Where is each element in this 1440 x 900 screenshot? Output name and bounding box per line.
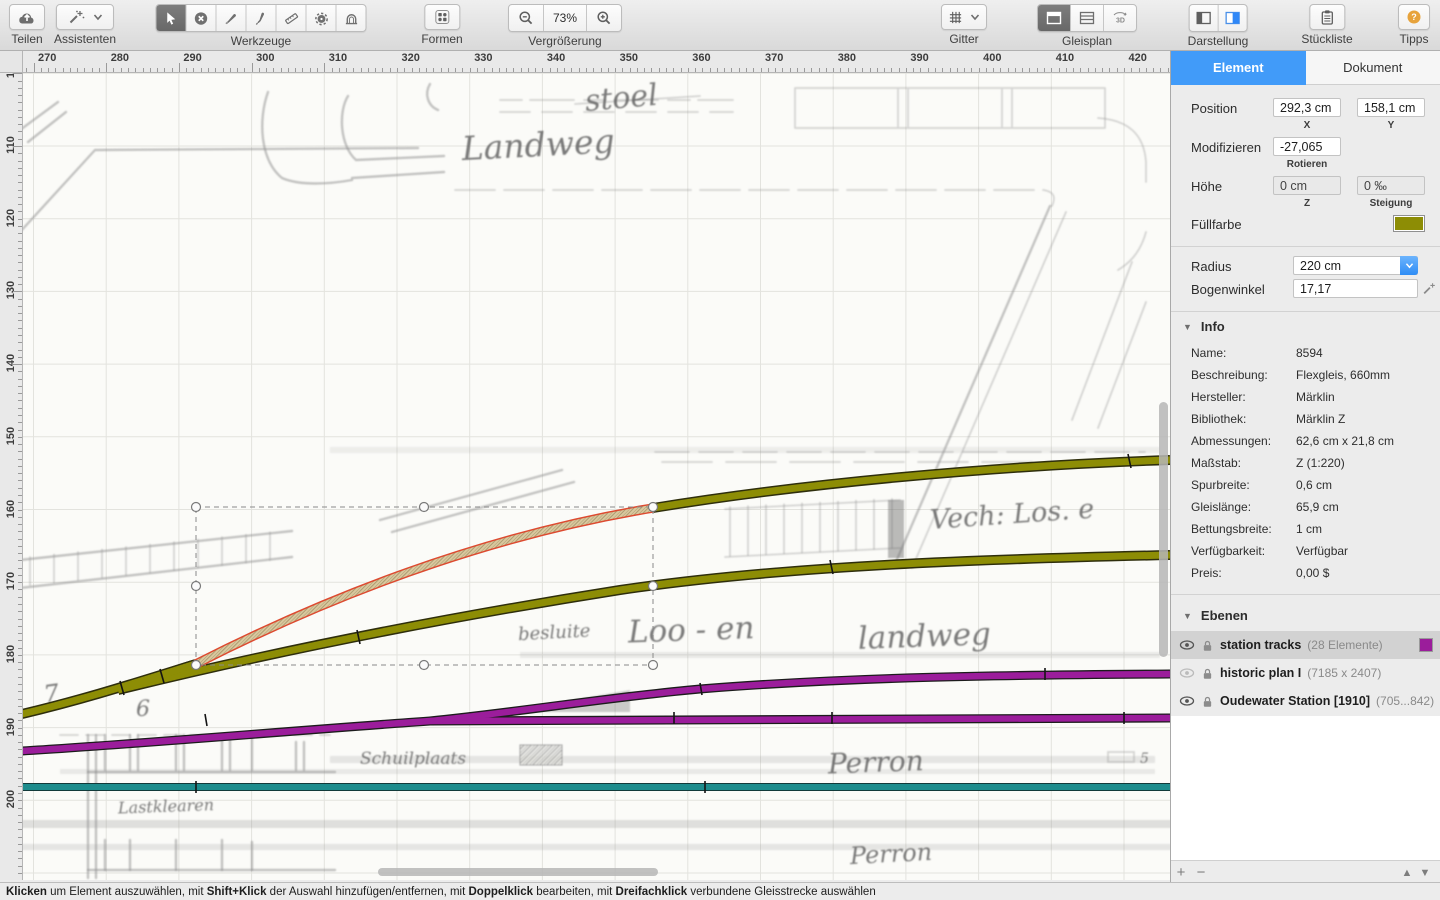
slope-field[interactable]: 0 ‰ (1357, 176, 1425, 195)
zoom-segmented: 73% (508, 4, 622, 32)
info-value: 62,6 cm x 21,8 cm (1296, 434, 1394, 448)
ruler-label: 410 (1056, 52, 1074, 64)
x-sublabel: X (1273, 120, 1341, 131)
zoom-out-button[interactable] (509, 5, 543, 31)
map-annotation: Perron (826, 744, 924, 780)
panel-right-icon (1224, 11, 1240, 25)
radius-label: Radius (1191, 259, 1231, 274)
shapes-group: Formen (421, 4, 462, 46)
tips-group: ? Tipps (1398, 4, 1430, 46)
ruler-label: 350 (620, 52, 638, 64)
eyedropper-icon (254, 11, 269, 26)
ruler-label: 400 (983, 52, 1001, 64)
assistants-group: Assistenten (54, 4, 116, 46)
ruler-label: 380 (838, 52, 856, 64)
tools-segmented (156, 4, 367, 32)
ruler-corner (0, 50, 23, 73)
status-text: Shift+Klick (207, 886, 267, 898)
ruler-label: 180 (5, 642, 17, 666)
zoom-label: Vergrößerung (528, 34, 601, 48)
info-label: Verfügbarkeit: (1191, 544, 1265, 558)
layers-section-header[interactable]: ▼ Ebenen (1183, 608, 1248, 623)
zoom-out-icon (518, 10, 534, 26)
shapes-label: Formen (421, 32, 462, 46)
ruler-label: 360 (692, 52, 710, 64)
info-value: 8594 (1296, 346, 1323, 360)
display-segmented (1188, 4, 1247, 32)
status-text: der Auswahl hinzufügen/entfernen, mit (266, 886, 468, 898)
z-sublabel: Z (1273, 198, 1341, 209)
info-label: Gleislänge: (1191, 500, 1251, 514)
z-field[interactable]: 0 cm (1273, 176, 1341, 195)
move-layer-up-button[interactable]: ▲ (1398, 867, 1416, 879)
info-value: Märklin Z (1296, 412, 1345, 426)
map-annotation: Loo - en (626, 610, 755, 650)
zoom-group: 73% Vergrößerung (508, 4, 622, 48)
info-value: Z (1:220) (1296, 456, 1345, 470)
info-section-header[interactable]: ▼ Info (1183, 319, 1225, 334)
help-icon: ? (1406, 9, 1422, 25)
select-tool-button[interactable] (157, 5, 186, 31)
inspector-panel: Element Dokument Position 292,3 cm 158,1… (1170, 50, 1440, 882)
arc-angle-label: Bogenwinkel (1191, 282, 1265, 297)
list-view-button[interactable] (1070, 5, 1103, 31)
shapes-icon (434, 9, 450, 25)
assistants-label: Assistenten (54, 32, 116, 46)
vertical-scrollbar-thumb[interactable] (1159, 402, 1168, 657)
tools-group: Werkzeuge (156, 4, 367, 48)
status-text: Dreifachklick (616, 886, 688, 898)
trackplan-view-button[interactable] (1038, 5, 1070, 31)
info-label: Spurbreite: (1191, 478, 1250, 492)
ruler-label: 140 (5, 351, 17, 375)
zoom-in-button[interactable] (586, 5, 621, 31)
layer-color-swatch[interactable] (1419, 638, 1433, 652)
vertical-ruler: 10110120130140150160170180190200 (0, 72, 23, 880)
position-x-field[interactable]: 292,3 cm (1273, 98, 1341, 117)
ruler-label: 310 (329, 52, 347, 64)
grid-group: Gitter (941, 4, 987, 46)
info-value: 65,9 cm (1296, 500, 1339, 514)
map-annotation: besluite (518, 620, 591, 645)
horizontal-scrollbar-thumb[interactable] (378, 868, 658, 876)
layer-row-oudewater-station[interactable]: Oudewater Station [1910] (705...842) (1171, 687, 1440, 715)
info-label: Bettungsbreite: (1191, 522, 1272, 536)
map-annotation: 6 (136, 697, 150, 722)
move-layer-down-button[interactable]: ▼ (1416, 867, 1434, 879)
tips-label: Tipps (1400, 32, 1429, 46)
shapes-button[interactable] (424, 4, 460, 30)
partslist-group: Stückliste (1301, 4, 1352, 46)
trackplan-label: Gleisplan (1062, 34, 1112, 48)
ruler-icon (283, 11, 299, 26)
layers-toolbar: + − ▲ ▼ (1171, 860, 1440, 884)
cursor-icon (164, 11, 179, 26)
ruler-label: 390 (910, 52, 928, 64)
svg-text:3D: 3D (1116, 18, 1125, 25)
map-annotation: 5 (1140, 751, 1149, 767)
tunnel-icon (343, 11, 359, 26)
tab-dokument[interactable]: Dokument (1306, 50, 1440, 85)
rotate-field[interactable]: -27,065 (1273, 137, 1341, 156)
share-group: Teilen (9, 4, 45, 46)
map-annotation: Vech: Los. e (929, 494, 1095, 536)
eyedropper-tool-button[interactable] (246, 5, 276, 31)
disclosure-triangle-icon: ▼ (1183, 611, 1192, 621)
fillcolor-well[interactable] (1393, 215, 1425, 232)
lock-icon[interactable] (1201, 694, 1214, 709)
ruler-label: 190 (5, 715, 17, 739)
layer-name: Oudewater Station [1910] (1220, 694, 1370, 708)
selection-handles[interactable] (192, 503, 658, 670)
info-label: Hersteller: (1191, 390, 1246, 404)
eye-icon[interactable] (1179, 639, 1195, 651)
layer-name: station tracks (1220, 638, 1301, 652)
eye-icon[interactable] (1179, 695, 1195, 707)
trackplan-canvas[interactable]: stoel Landweg Vech: Los. e besluite Loo … (22, 72, 1170, 880)
info-label: Beschreibung: (1191, 368, 1268, 382)
layers-list-background (1171, 716, 1440, 860)
cut-tool-button[interactable] (306, 5, 336, 31)
ruler-label: 270 (38, 52, 56, 64)
ruler-label: 200 (5, 787, 17, 811)
cloud-upload-icon (17, 10, 37, 25)
ruler-label: 290 (183, 52, 201, 64)
wand-icon[interactable] (1422, 281, 1437, 296)
ruler-label: 160 (5, 497, 17, 521)
map-annotation: landweg (857, 616, 991, 657)
partslist-label: Stückliste (1301, 32, 1352, 46)
layer-detail: (28 Elemente) (1307, 638, 1382, 652)
rotate-sublabel: Rotieren (1273, 159, 1341, 170)
tips-button[interactable]: ? (1398, 4, 1430, 30)
lock-icon[interactable] (1201, 638, 1214, 653)
magic-wand-icon (67, 9, 84, 25)
chevron-down-icon (1405, 262, 1414, 269)
ruler-label: 300 (256, 52, 274, 64)
clipboard-icon (1319, 9, 1335, 26)
panel-left-icon (1195, 11, 1211, 25)
fillcolor-label: Füllfarbe (1191, 217, 1242, 232)
chevron-down-icon (970, 13, 980, 21)
modify-label: Modifizieren (1191, 140, 1261, 155)
info-label: Preis: (1191, 566, 1222, 580)
info-value: Märklin (1296, 390, 1335, 404)
list-view-icon (1079, 11, 1095, 25)
saw-icon (313, 11, 329, 26)
zoom-value[interactable]: 73% (543, 5, 586, 31)
trackplan-drawing[interactable]: stoel Landweg Vech: Los. e besluite Loo … (22, 72, 1170, 880)
right-panel-toggle[interactable] (1217, 5, 1246, 31)
ruler-label: 280 (111, 52, 129, 64)
info-label: Bibliothek: (1191, 412, 1246, 426)
assistants-button[interactable] (56, 4, 114, 30)
add-layer-button[interactable]: + (1171, 864, 1191, 881)
status-text: Klicken (6, 886, 47, 898)
share-label: Teilen (11, 32, 42, 46)
zoom-in-icon (596, 10, 612, 26)
threed-view-icon: 3D (1111, 11, 1129, 25)
remove-layer-button[interactable]: − (1191, 864, 1211, 881)
map-annotation: Lastklearen (117, 795, 215, 817)
horizontal-ruler: 2702802903003103203303403503603703803904… (22, 50, 1170, 73)
info-label: Name: (1191, 346, 1226, 360)
status-text: bearbeiten, mit (533, 886, 615, 898)
ruler-label: 130 (5, 278, 17, 302)
status-text: um Element auszuwählen, mit (47, 886, 207, 898)
arc-angle-field[interactable]: 17,17 (1293, 279, 1418, 298)
disclosure-triangle-icon: ▼ (1183, 322, 1192, 332)
x-circle-icon (194, 11, 209, 26)
grid-icon (948, 10, 963, 25)
info-value: 0,00 $ (1296, 566, 1329, 580)
brush-icon (224, 11, 239, 26)
selected-flex-track[interactable] (192, 503, 658, 670)
map-annotation: Schuilplaats (360, 749, 466, 769)
trackplan-group: 3D Gleisplan (1037, 4, 1137, 48)
radius-dropdown-button[interactable] (1400, 256, 1418, 275)
layer-row-historic-plan[interactable]: historic plan I (7185 x 2407) (1171, 659, 1440, 687)
position-label: Position (1191, 101, 1237, 116)
chevron-down-icon (92, 13, 102, 21)
info-value: 0,6 cm (1296, 478, 1332, 492)
delete-tool-button[interactable] (186, 5, 216, 31)
y-sublabel: Y (1357, 120, 1425, 131)
layer-row-station-tracks[interactable]: station tracks (28 Elemente) (1171, 631, 1440, 659)
threed-view-button[interactable]: 3D (1103, 5, 1136, 31)
layer-detail: (7185 x 2407) (1307, 666, 1381, 680)
ruler-label: 110 (5, 133, 17, 157)
map-annotation: Landweg (460, 121, 616, 168)
layers-title: Ebenen (1201, 608, 1248, 623)
ruler-label: 120 (5, 206, 17, 230)
tools-label: Werkzeuge (231, 34, 291, 48)
info-value: Verfügbar (1296, 544, 1348, 558)
ruler-label: 170 (5, 569, 17, 593)
info-value: Flexgleis, 660mm (1296, 368, 1390, 382)
ruler-label: 420 (1129, 52, 1147, 64)
info-label: Maßstab: (1191, 456, 1241, 470)
layout-view-icon (1046, 11, 1062, 25)
ruler-label: 370 (765, 52, 783, 64)
slope-sublabel: Steigung (1357, 198, 1425, 209)
display-label: Darstellung (1188, 34, 1249, 48)
grid-label: Gitter (949, 32, 978, 46)
info-title: Info (1201, 319, 1225, 334)
share-button[interactable] (9, 4, 45, 30)
tunnel-tool-button[interactable] (336, 5, 366, 31)
status-bar: Klicken um Element auszuwählen, mit Shif… (0, 882, 1440, 900)
ruler-label: 320 (402, 52, 420, 64)
info-label: Abmessungen: (1191, 434, 1271, 448)
historic-plan-layer: stoel Landweg Vech: Los. e besluite Loo … (22, 78, 1170, 878)
partslist-button[interactable] (1309, 4, 1345, 30)
info-value: 1 cm (1296, 522, 1322, 536)
position-y-field[interactable]: 158,1 cm (1357, 98, 1425, 117)
grid-button[interactable] (941, 4, 987, 30)
trackplan-segmented: 3D (1037, 4, 1137, 32)
ruler-label: 340 (547, 52, 565, 64)
ruler-label: 330 (474, 52, 492, 64)
status-text: verbundene Gleisstrecke auswählen (687, 886, 876, 898)
eye-icon[interactable] (1179, 667, 1195, 679)
map-annotation: Perron (848, 838, 932, 870)
tab-element[interactable]: Element (1171, 50, 1306, 85)
lock-icon[interactable] (1201, 666, 1214, 681)
paint-tool-button[interactable] (216, 5, 246, 31)
display-group: Darstellung (1188, 4, 1249, 48)
map-annotation: stoel (583, 78, 659, 119)
ruler-label: 150 (5, 424, 17, 448)
height-label: Höhe (1191, 179, 1222, 194)
status-text: Doppelklick (469, 886, 534, 898)
layer-name: historic plan I (1220, 666, 1301, 680)
main-toolbar: Teilen Assistenten (0, 0, 1440, 51)
left-panel-toggle[interactable] (1189, 5, 1217, 31)
measure-tool-button[interactable] (276, 5, 306, 31)
inspector-tabs: Element Dokument (1171, 50, 1440, 85)
svg-text:?: ? (1411, 12, 1417, 22)
layer-detail: (705...842) (1376, 694, 1434, 708)
